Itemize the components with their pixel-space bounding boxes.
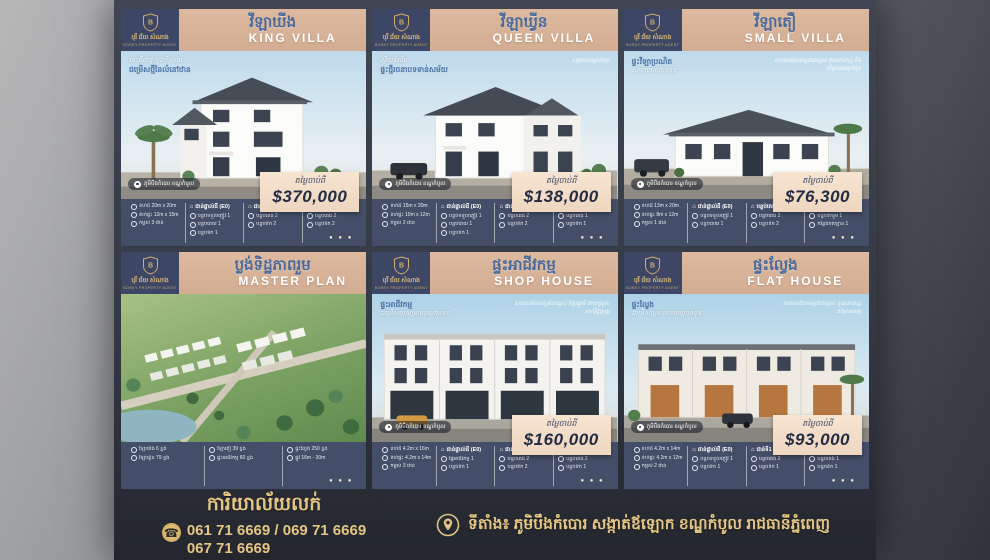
spec-column: ⌂ជាន់ផ្ទាល់ដី (E0)បន្ទប់ទទួលភ្ញៀវ 1បន្ទប… <box>185 203 244 243</box>
footer: ការិយាល័យលក់ ☎ 061 71 6669 / 069 71 6669… <box>114 490 876 560</box>
svg-text:B: B <box>399 263 404 270</box>
spec-item: ផ្ទះល្វែង 250 ខ្នង <box>287 446 356 453</box>
bullet-icon <box>248 213 254 219</box>
card-title-english: FLAT HOUSE <box>747 275 843 288</box>
spec-column-header: ⌂ជាន់ផ្ទាល់ដី (E0) <box>692 203 742 211</box>
spec-item: បន្ទប់ទទួលភ្ញៀវ 1 <box>692 456 742 463</box>
bullet-icon <box>131 212 137 218</box>
card-title-khmer: វីឡាតឿ <box>754 15 796 31</box>
spec-item: បន្ទប់គេង 1 <box>558 213 608 220</box>
phone-block: ☎ 061 71 6669 / 069 71 6669 067 71 6669 <box>130 522 398 558</box>
spec-item: បន្ទប់ទទួលភ្ញៀវ 1 <box>441 213 491 220</box>
phone-icon: ☎ <box>162 523 181 542</box>
master-plan-aerial <box>121 294 366 442</box>
carousel-dots: ● ● ● <box>832 478 856 484</box>
spec-item: ទំហំដី 4.2m x 16m <box>382 446 432 453</box>
photo-caption-right: សាងសង់តាមស្តង់ដារខ្ពស់ គុណភាពល្អ និងតម្ល… <box>765 58 861 73</box>
spec-item: វីឡាឃ្វីន 79 ខ្នង <box>131 455 200 462</box>
brand-logo: B បុរី ជ័យ សំណាង BOREY PROPERTY AGENT <box>121 9 179 51</box>
spec-item: កម្ពស់ 2 ជាន់ <box>382 220 432 227</box>
shield-logo-icon: B <box>393 13 410 32</box>
address-text: ទីតាំង៖ ភូមិបឹងកំបោរ សង្កាត់ឪឡោក ខណ្ឌកំប… <box>468 514 830 537</box>
photo-caption: ផ្ទះល្វែង ជម្រើសល្អសម្រាប់បណ្តាក់ទុន <box>632 300 702 318</box>
spec-item: បន្ទប់ទឹក 2 <box>307 221 357 228</box>
bullet-icon <box>441 213 447 219</box>
spec-item: បន្ទប់ទឹក 2 <box>499 464 549 471</box>
photo-caption-right: សម្រាប់បណ្តាក់ទុន <box>572 58 610 66</box>
spec-item: កម្ពស់ 2 ជាន់ <box>634 463 684 470</box>
house-icon: ⌂ <box>248 204 252 210</box>
card-header: B បុរី ជ័យ សំណាង BOREY PROPERTY AGENT វី… <box>624 9 869 51</box>
brand-subtitle: BOREY PROPERTY AGENT <box>626 43 679 47</box>
map-pin-icon <box>436 513 460 537</box>
spec-item: បន្ទប់ទទួលភ្ញៀវ 1 <box>190 213 240 220</box>
bullet-icon <box>809 465 815 471</box>
card-titles: វីឡាឃីង KING VILLA <box>179 9 366 51</box>
bullet-icon <box>692 465 698 471</box>
bullet-icon <box>209 447 215 453</box>
card-flat-house: B បុរី ជ័យ សំណាង BOREY PROPERTY AGENT ផ្… <box>624 252 869 489</box>
bullet-icon <box>190 230 196 236</box>
spec-item: បន្ទប់ទឹក 1 <box>441 464 491 471</box>
spec-column: ⌂ជាន់ផ្ទាល់ដី (E0)បន្ទប់ទទួលភ្ញៀវ 1បន្ទប… <box>436 203 495 243</box>
spec-column: វីឡាឃីង 6 ខ្នងវីឡាឃ្វីន 79 ខ្នង <box>127 446 204 486</box>
poster: B បុរី ជ័យ សំណាង BOREY PROPERTY AGENT វី… <box>114 0 876 560</box>
location-pin: ភូមិបឹងកំបោរ ខណ្ឌកំបូល <box>379 421 451 433</box>
house-icon: ⌂ <box>441 447 445 453</box>
spec-item: ទំហំដី 4.2m x 14m <box>634 446 684 453</box>
bullet-icon <box>190 213 196 219</box>
price-badge: តម្លៃចាប់ពី $160,000 <box>512 415 611 455</box>
location-pin-icon <box>385 181 392 188</box>
spec-item: វីឡាតឿ 39 ខ្នង <box>209 446 278 453</box>
spec-item: ផ្ទៃអាជីវកម្ម 1 <box>441 456 491 463</box>
spec-item: បន្ទប់បាយ 1 <box>190 221 240 228</box>
spec-item: បន្ទប់ទទួលភ្ញៀវ 1 <box>692 213 742 220</box>
spec-item: កម្ពស់ 3 ជាន់ <box>131 220 181 227</box>
sales-office-title: ការិយាល័យលក់ <box>130 492 398 520</box>
carousel-dots: ● ● ● <box>580 478 604 484</box>
spec-column-header: ⌂ជាន់ផ្ទាល់ដី (E0) <box>692 446 742 454</box>
photo-caption-right: សាងសង់តាមស្តង់ដារខ្ពស់ ក្បែរផ្លូវធំ ងាយស… <box>514 301 610 316</box>
spec-item: បន្ទប់គេង 1 <box>809 456 859 463</box>
photo-caption: ផ្ទះវីឡាប្រណិត សម្រាប់បណ្តាក់ទុន <box>632 57 677 75</box>
phone-numbers-line2: 067 71 6669 <box>187 540 366 558</box>
spec-item: ទំហំផ្ទះ 8m x 12m <box>634 212 684 219</box>
card-title-khmer: វីឡាឃ្វីន <box>501 15 548 31</box>
bullet-icon <box>634 447 640 453</box>
bullet-icon <box>131 221 137 227</box>
card-titles: វីឡាតឿ SMALL VILLA <box>682 9 869 51</box>
spec-item: កន្លែងចតឡាន 1 <box>809 221 859 228</box>
spec-item: ទំហំផ្ទះ 12m x 15m <box>131 212 181 219</box>
spec-column: ទំហំដី 13m x 20mទំហំផ្ទះ 8m x 12mកម្ពស់ … <box>630 203 688 243</box>
bullet-icon <box>634 204 640 210</box>
bullet-icon <box>441 456 447 462</box>
shield-logo-icon: B <box>644 256 661 275</box>
house-icon: ⌂ <box>692 447 696 453</box>
spec-item: បន្ទប់ទឹក 1 <box>558 221 608 228</box>
carousel-dots: ● ● ● <box>832 235 856 241</box>
spec-item: បន្ទប់គេង 2 <box>248 213 298 220</box>
spec-item: ផ្ទះអាជីវកម្ម 60 ខ្នង <box>209 455 278 462</box>
bullet-icon <box>558 222 564 228</box>
brand-logo: B បុរី ជ័យ សំណាង BOREY PROPERTY AGENT <box>372 9 430 51</box>
spec-item: បន្ទប់គេង 2 <box>307 213 357 220</box>
bullet-icon <box>287 455 293 461</box>
aerial-render <box>121 294 366 442</box>
house-icon: ⌂ <box>499 204 503 210</box>
house-icon: ⌂ <box>692 204 696 210</box>
bullet-icon <box>809 222 815 228</box>
brand-subtitle: BOREY PROPERTY AGENT <box>123 286 176 290</box>
spec-column: ទំហំដី 4.2m x 14mទំហំផ្ទះ 4.2m x 12mកម្ព… <box>630 446 688 486</box>
house-icon: ⌂ <box>751 447 755 453</box>
house-icon: ⌂ <box>190 204 194 210</box>
bullet-icon <box>382 221 388 227</box>
spec-column-header: ⌂ជាន់ផ្ទាល់ដី (E0) <box>441 203 491 211</box>
spec-column-header: ⌂ជាន់ផ្ទាល់ដី (E0) <box>190 203 240 211</box>
spec-column: ⌂ជាន់ផ្ទាល់ដី (E0)បន្ទប់ទទួលភ្ញៀវ 1បន្ទប… <box>687 203 746 243</box>
price-badge: តម្លៃចាប់ពី $138,000 <box>512 172 611 212</box>
spec-item: បន្ទប់ទឹក 2 <box>248 221 298 228</box>
spec-column: ទំហំដី 15m x 20mទំហំផ្ទះ 10m x 12mកម្ពស់… <box>378 203 436 243</box>
brand-subtitle: BOREY PROPERTY AGENT <box>375 286 428 290</box>
location-pin-icon <box>134 181 141 188</box>
bullet-icon <box>634 212 640 218</box>
brand-subtitle: BOREY PROPERTY AGENT <box>375 43 428 47</box>
svg-text:B: B <box>399 20 404 27</box>
spec-column: ⌂ជាន់ផ្ទាល់ដី (E0)បន្ទប់ទទួលភ្ញៀវ 1បន្ទប… <box>687 446 746 486</box>
card-header: B បុរី ជ័យ សំណាង BOREY PROPERTY AGENT វី… <box>121 9 366 51</box>
price-badge: តម្លៃចាប់ពី $370,000 <box>260 172 359 212</box>
spec-item: កម្ពស់ 3 ជាន់ <box>382 463 432 470</box>
spec-item: បន្ទប់ទឹករួម 1 <box>809 213 859 220</box>
house-icon: ⌂ <box>751 204 755 210</box>
spec-item: បន្ទប់ទឹក 2 <box>751 221 801 228</box>
location-pin: ភូមិបឹងកំបោរ ខណ្ឌកំបូល <box>128 178 200 190</box>
card-title-khmer: វីឡាឃីង <box>249 15 296 31</box>
shield-logo-icon: B <box>142 13 159 32</box>
bullet-icon <box>558 465 564 471</box>
bullet-icon <box>307 222 313 228</box>
card-king-villa: B បុរី ជ័យ សំណាង BOREY PROPERTY AGENT វី… <box>121 9 366 246</box>
photo-caption: ផ្ទះអាជីវកម្ម ជម្រើសល្អសម្រាប់បណ្តាក់ទុន <box>380 300 450 318</box>
carousel-dots: ● ● ● <box>580 235 604 241</box>
spec-column: ទំហំដី 4.2m x 16mទំហំផ្ទះ 4.2m x 14mកម្ព… <box>378 446 436 486</box>
spec-item: បន្ទប់ទឹក 2 <box>499 221 549 228</box>
spec-item: ទំហំផ្ទះ 4.2m x 12m <box>634 455 684 462</box>
bullet-icon <box>751 222 757 228</box>
card-small-villa: B បុរី ជ័យ សំណាង BOREY PROPERTY AGENT វី… <box>624 9 869 246</box>
bullet-icon <box>248 222 254 228</box>
svg-text:B: B <box>650 20 655 27</box>
spec-item: បន្ទប់ទឹក 1 <box>751 464 801 471</box>
bullet-icon <box>558 213 564 219</box>
brand-name: បុរី ជ័យ សំណាង <box>131 276 168 285</box>
carousel-dots: ● ● ● <box>329 478 353 484</box>
spec-item: វីឡាឃីង 6 ខ្នង <box>131 446 200 453</box>
card-title-english: SHOP HOUSE <box>494 275 594 288</box>
card-title-khmer: ផ្ទះល្វែង <box>753 258 798 274</box>
price-badge: តម្លៃចាប់ពី $93,000 <box>773 415 862 455</box>
spec-item: បន្ទប់បាយ 1 <box>441 221 491 228</box>
bullet-icon <box>634 221 640 227</box>
bullet-icon <box>307 213 313 219</box>
brand-logo: B បុរី ជ័យ សំណាង BOREY PROPERTY AGENT <box>372 252 430 294</box>
card-title-khmer: ប្លង់ទិដ្ឋភាពរួម <box>235 258 311 274</box>
svg-text:B: B <box>147 20 152 27</box>
shield-logo-icon: B <box>393 256 410 275</box>
brand-name: បុរី ជ័យ សំណាង <box>131 33 168 42</box>
bullet-icon <box>499 456 505 462</box>
bullet-icon <box>809 213 815 219</box>
location-pin: ភូមិបឹងកំបោរ ខណ្ឌកំបូល <box>631 421 703 433</box>
location-pin-icon <box>385 424 392 431</box>
bullet-icon <box>558 456 564 462</box>
brand-name: បុរី ជ័យ សំណាង <box>383 276 420 285</box>
address-block: ទីតាំង៖ ភូមិបឹងកំបោរ សង្កាត់ឪឡោក ខណ្ឌកំប… <box>406 513 860 537</box>
brand-name: បុរី ជ័យ សំណាង <box>634 276 671 285</box>
phone-numbers-line1: 061 71 6669 / 069 71 6669 <box>187 522 366 540</box>
card-title-english: KING VILLA <box>249 32 337 45</box>
card-title-english: QUEEN VILLA <box>493 32 596 45</box>
card-master-plan: B បុរី ជ័យ សំណាង BOREY PROPERTY AGENT ប្… <box>121 252 366 489</box>
card-header: B បុរី ជ័យ សំណាង BOREY PROPERTY AGENT ផ្… <box>624 252 869 294</box>
brand-logo: B បុរី ជ័យ សំណាង BOREY PROPERTY AGENT <box>121 252 179 294</box>
card-title-english: MASTER PLAN <box>238 275 347 288</box>
brand-name: បុរី ជ័យ សំណាង <box>383 33 420 42</box>
card-queen-villa: B បុរី ជ័យ សំណាង BOREY PROPERTY AGENT វី… <box>372 9 617 246</box>
card-title-english: SMALL VILLA <box>745 32 846 45</box>
spec-item: កម្ពស់ 1 ជាន់ <box>634 220 684 227</box>
spec-item: បន្ទប់ទឹក 1 <box>809 464 859 471</box>
spec-item: បន្ទប់គេង 2 <box>751 213 801 220</box>
bullet-icon <box>131 447 137 453</box>
house-icon: ⌂ <box>499 447 503 453</box>
svg-text:B: B <box>650 263 655 270</box>
bullet-icon <box>131 455 137 461</box>
bullet-icon <box>131 204 137 210</box>
bullet-icon <box>190 222 196 228</box>
location-pin-icon <box>637 424 644 431</box>
spec-item: ផ្លូវ 16m - 30m <box>287 455 356 462</box>
bullet-icon <box>692 213 698 219</box>
bullet-icon <box>751 465 757 471</box>
card-shop-house: B បុរី ជ័យ សំណាង BOREY PROPERTY AGENT ផ្… <box>372 252 617 489</box>
card-grid: B បុរី ជ័យ សំណាង BOREY PROPERTY AGENT វី… <box>114 0 876 489</box>
spec-item: បន្ទប់ទឹក 1 <box>441 230 491 237</box>
shield-logo-icon: B <box>644 13 661 32</box>
bullet-icon <box>751 213 757 219</box>
spec-strip: វីឡាឃីង 6 ខ្នងវីឡាឃ្វីន 79 ខ្នងវីឡាតឿ 39… <box>121 442 366 489</box>
spec-column: ⌂ជាន់ផ្ទាល់ដី (E0)ផ្ទៃអាជីវកម្ម 1បន្ទប់ទ… <box>436 446 495 486</box>
bullet-icon <box>809 456 815 462</box>
spec-column-header: ⌂ជាន់ផ្ទាល់ដី (E0) <box>441 446 491 454</box>
spec-item: បន្ទប់ទឹក 1 <box>692 464 742 471</box>
card-title-khmer: ផ្ទះអាជីវកម្ម <box>492 258 556 274</box>
spec-item: ទំហំដី 15m x 20m <box>382 203 432 210</box>
price-badge: តម្លៃចាប់ពី $76,300 <box>773 172 862 212</box>
sales-office-block: ការិយាល័យលក់ ☎ 061 71 6669 / 069 71 6669… <box>130 492 398 558</box>
bullet-icon <box>499 213 505 219</box>
bullet-icon <box>382 464 388 470</box>
bullet-icon <box>382 212 388 218</box>
spec-item: បន្ទប់គេង 2 <box>751 456 801 463</box>
bullet-icon <box>441 230 447 236</box>
location-pin: ភូមិបឹងកំបោរ ខណ្ឌកំបូល <box>379 178 451 190</box>
bullet-icon <box>499 465 505 471</box>
bullet-icon <box>382 447 388 453</box>
photo-caption: នេះគឺជាផ្ទះក្នុងក្តីស្រមៃ ជម្រើសថ្មីនៃលំ… <box>129 57 191 75</box>
bullet-icon <box>692 222 698 228</box>
spec-item: ទំហំដី 20m x 20m <box>131 203 181 210</box>
bullet-icon <box>382 455 388 461</box>
spec-item: បន្ទប់គេង 2 <box>499 213 549 220</box>
bullet-icon <box>441 465 447 471</box>
card-header: B បុរី ជ័យ សំណាង BOREY PROPERTY AGENT វី… <box>372 9 617 51</box>
card-titles: ផ្ទះអាជីវកម្ម SHOP HOUSE <box>430 252 617 294</box>
bullet-icon <box>382 204 388 210</box>
card-header: B បុរី ជ័យ សំណាង BOREY PROPERTY AGENT ផ្… <box>372 252 617 294</box>
bullet-icon <box>692 456 698 462</box>
spec-item: ទំហំដី 13m x 20m <box>634 203 684 210</box>
spec-item: បន្ទប់ទឹក 1 <box>558 464 608 471</box>
bullet-icon <box>209 455 215 461</box>
card-titles: ផ្ទះល្វែង FLAT HOUSE <box>682 252 869 294</box>
spec-item: បន្ទប់គេង 2 <box>499 456 549 463</box>
bullet-icon <box>287 447 293 453</box>
svg-text:B: B <box>147 263 152 270</box>
house-icon: ⌂ <box>441 204 445 210</box>
brand-subtitle: BOREY PROPERTY AGENT <box>626 286 679 290</box>
bullet-icon <box>499 222 505 228</box>
spec-item: ទំហំផ្ទះ 4.2m x 14m <box>382 455 432 462</box>
location-pin: ភូមិបឹងកំបោរ ខណ្ឌកំបូល <box>631 178 703 190</box>
bullet-icon <box>634 455 640 461</box>
bullet-icon <box>634 464 640 470</box>
card-titles: វីឡាឃ្វីន QUEEN VILLA <box>430 9 617 51</box>
location-pin-icon <box>637 181 644 188</box>
spec-item: បន្ទប់ទឹក 1 <box>190 230 240 237</box>
spec-column: ទំហំដី 20m x 20mទំហំផ្ទះ 12m x 15mកម្ពស់… <box>127 203 185 243</box>
bullet-icon <box>751 456 757 462</box>
spec-item: បន្ទប់គេង 2 <box>558 456 608 463</box>
brand-logo: B បុរី ជ័យ សំណាង BOREY PROPERTY AGENT <box>624 9 682 51</box>
brand-subtitle: BOREY PROPERTY AGENT <box>123 43 176 47</box>
spec-item: បន្ទប់បាយ 1 <box>692 221 742 228</box>
spec-item: ទំហំផ្ទះ 10m x 12m <box>382 212 432 219</box>
card-titles: ប្លង់ទិដ្ឋភាពរួម MASTER PLAN <box>179 252 366 294</box>
card-header: B បុរី ជ័យ សំណាង BOREY PROPERTY AGENT ប្… <box>121 252 366 294</box>
brand-logo: B បុរី ជ័យ សំណាង BOREY PROPERTY AGENT <box>624 252 682 294</box>
brand-name: បុរី ជ័យ សំណាង <box>634 33 671 42</box>
bullet-icon <box>441 222 447 228</box>
spec-column: វីឡាតឿ 39 ខ្នងផ្ទះអាជីវកម្ម 60 ខ្នង <box>204 446 282 486</box>
carousel-dots: ● ● ● <box>329 235 353 241</box>
photo-caption-right: សាងសង់តាមស្តង់ដារខ្ពស់ គុណភាពល្អ តម្លៃសម… <box>765 301 861 316</box>
photo-caption: ស្ទីលទំនើប ផ្ទះថ្មីរចនាបទទាន់សម័យ <box>380 57 448 75</box>
shield-logo-icon: B <box>142 256 159 275</box>
